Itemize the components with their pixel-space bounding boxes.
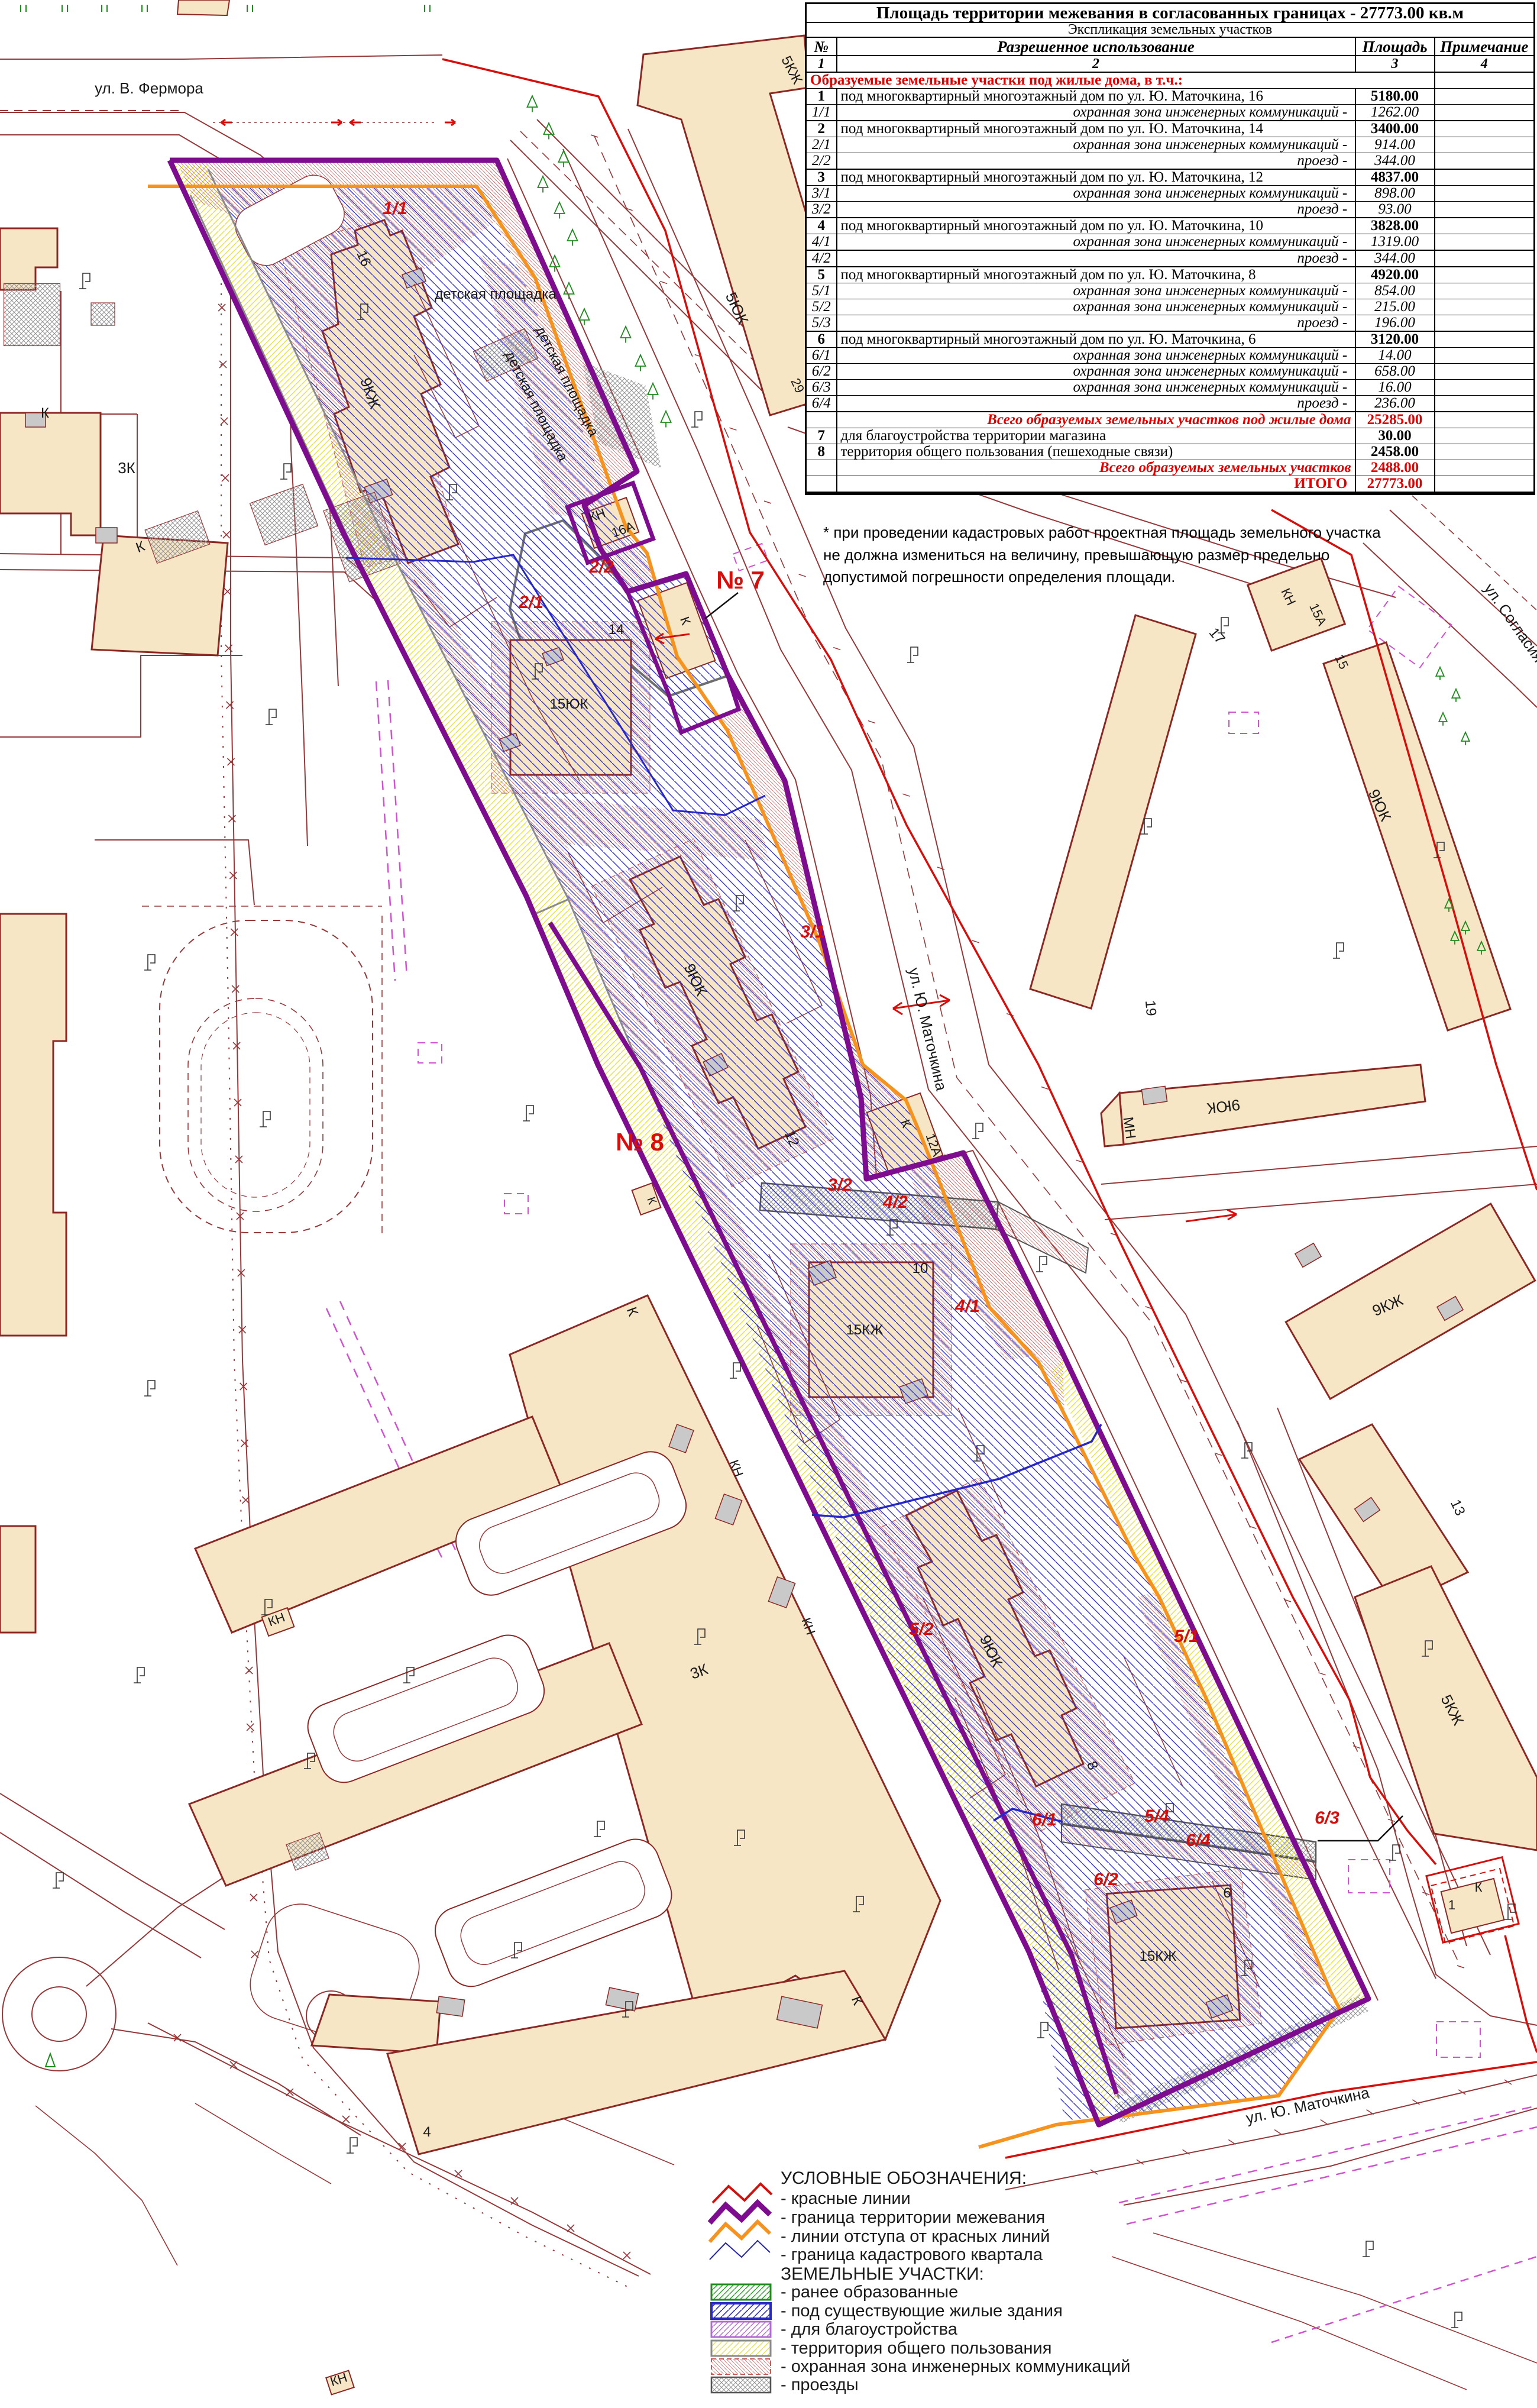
svg-text:- граница территории межевания: - граница территории межевания — [781, 2208, 1045, 2227]
svg-text:- проезды: - проезды — [781, 2375, 859, 2394]
svg-text:- граница кадастрового квартал: - граница кадастрового квартала — [781, 2245, 1043, 2264]
svg-text:ЗЕМЕЛЬНЫЕ УЧАСТКИ:: ЗЕМЕЛЬНЫЕ УЧАСТКИ: — [781, 2264, 984, 2284]
svg-text:- линии отступа от красных лин: - линии отступа от красных линий — [781, 2227, 1050, 2246]
svg-text:- охранная зона инженерных ком: - охранная зона инженерных коммуникаций — [781, 2357, 1130, 2376]
svg-text:УСЛОВНЫЕ ОБОЗНАЧЕНИЯ:: УСЛОВНЫЕ ОБОЗНАЧЕНИЯ: — [781, 2168, 1027, 2188]
svg-text:- под существующие жилые здани: - под существующие жилые здания — [781, 2302, 1063, 2320]
svg-text:- территория общего пользовани: - территория общего пользования — [781, 2339, 1051, 2358]
svg-text:- красные линии: - красные линии — [781, 2189, 911, 2208]
svg-text:- для благоустройства: - для благоустройства — [781, 2320, 958, 2339]
svg-text:- ранее образованные: - ранее образованные — [781, 2283, 958, 2302]
